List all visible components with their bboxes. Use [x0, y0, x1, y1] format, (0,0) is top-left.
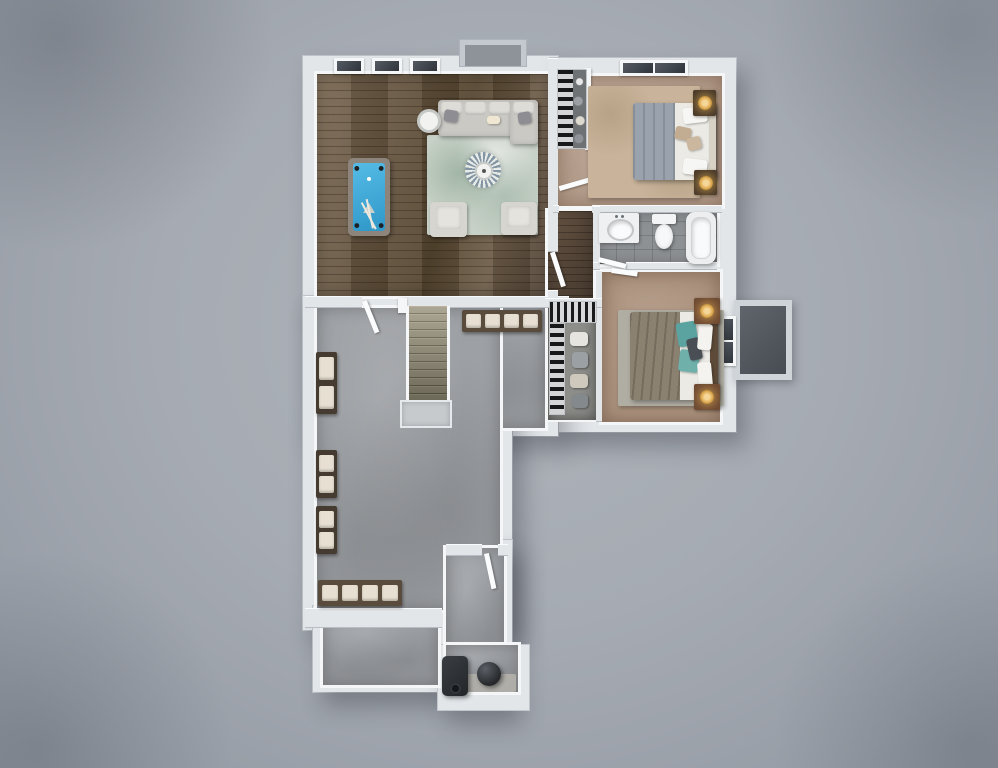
window-glass: [655, 63, 685, 73]
sofa-back-cushion: [465, 102, 486, 115]
throw-pillow: [443, 109, 459, 123]
bathtub: [686, 212, 716, 264]
table-lamp: [698, 96, 712, 110]
table-decor: [482, 169, 486, 173]
throw-pillow: [517, 111, 532, 125]
chimney-cavity: [465, 45, 521, 66]
toilet: [655, 224, 673, 249]
tub-basin: [691, 217, 711, 259]
table-lamp: [700, 390, 714, 404]
wall-bench-3: [316, 506, 337, 554]
bench-cushion: [382, 585, 398, 601]
nightstand: [694, 170, 717, 195]
bench-cushion: [319, 357, 334, 380]
living-east-wall: [548, 58, 558, 252]
bed-2-duvet: [630, 312, 682, 400]
sink: [607, 219, 634, 241]
closet-2-east-wall: [596, 270, 602, 422]
basement-south-wall: [305, 608, 442, 628]
bench-cushion: [362, 585, 378, 601]
furnace: [442, 656, 468, 696]
storage-bench-top: [462, 310, 542, 332]
table-lamp: [699, 176, 713, 190]
game-room-window-3: [410, 58, 440, 74]
toilet-tank: [652, 214, 676, 224]
game-room-window-1: [334, 58, 364, 74]
hanging-clothes: [570, 374, 588, 388]
walnut-nightstand: [694, 384, 720, 410]
game-room-window-2: [372, 58, 402, 74]
sofa-back-cushion: [489, 102, 510, 115]
water-heater: [477, 662, 501, 686]
window-glass: [723, 342, 733, 363]
armchair-right: [501, 202, 537, 235]
bench-cushion: [319, 511, 334, 528]
egress-window-well: [734, 300, 792, 380]
closet-shelves: [550, 324, 564, 414]
pool-table: [348, 158, 390, 236]
utility-wall-right: [498, 544, 508, 556]
bathroom-wall-stub: [593, 262, 599, 270]
faucet-handle: [621, 215, 624, 218]
bedroom-1-wall-stub: [553, 205, 559, 213]
wall-bench-2: [316, 450, 337, 498]
window-glass: [623, 63, 653, 73]
bench-cushion: [523, 314, 538, 328]
bench-cushion: [319, 476, 334, 493]
armchair-left: [430, 202, 467, 237]
utility-wall-left: [446, 544, 482, 556]
window-glass: [375, 61, 399, 71]
white-pillow: [697, 323, 713, 350]
window-glass: [723, 319, 733, 340]
furnace-vent: [450, 683, 461, 694]
fireplace-chimney-bump: [460, 40, 526, 66]
bench-cushion: [485, 314, 500, 328]
window-glass: [413, 61, 437, 71]
hanging-clothes: [572, 394, 588, 408]
closet-shelves: [558, 70, 573, 148]
bench-cushion: [319, 532, 334, 549]
bench-cushion: [322, 585, 338, 601]
bed-1-accent-pillow: [686, 135, 703, 151]
window-glass: [337, 61, 361, 71]
hanging-clothes: [572, 352, 588, 368]
sofa-tray: [487, 116, 500, 124]
faucet: [615, 215, 618, 218]
walnut-nightstand: [694, 298, 720, 324]
staircase: [406, 306, 450, 404]
stair-landing: [402, 402, 450, 426]
closet-2-top-shelf: [550, 302, 596, 322]
bedroom-1-window: [620, 60, 688, 76]
bench-cushion: [504, 314, 519, 328]
nightstand: [693, 90, 716, 116]
vanity: [599, 213, 639, 243]
floor-plan-render: [0, 0, 998, 768]
coffee-table: [475, 162, 493, 180]
table-lamp: [700, 304, 714, 318]
closet-clothes: [573, 70, 586, 148]
window-well-cavity: [740, 306, 786, 374]
round-side-table: [417, 109, 441, 133]
closet-1-shelving: [558, 70, 586, 148]
bed-1-duvet: [633, 103, 675, 180]
armchair-seat: [507, 206, 531, 227]
closet-2-side-shelf: [550, 324, 564, 414]
pool-table-felt: [353, 163, 385, 231]
armchair-seat: [436, 206, 461, 229]
cue-ball: [367, 177, 371, 181]
wall-bench-1: [316, 352, 337, 414]
bench-cushion: [319, 386, 334, 409]
living-basement-wall-left: [305, 296, 362, 308]
bench-cushion: [342, 585, 358, 601]
storage-bench-bottom: [318, 580, 402, 606]
hanging-clothes: [570, 332, 588, 346]
bench-cushion: [319, 455, 334, 472]
bench-cushion: [466, 314, 481, 328]
